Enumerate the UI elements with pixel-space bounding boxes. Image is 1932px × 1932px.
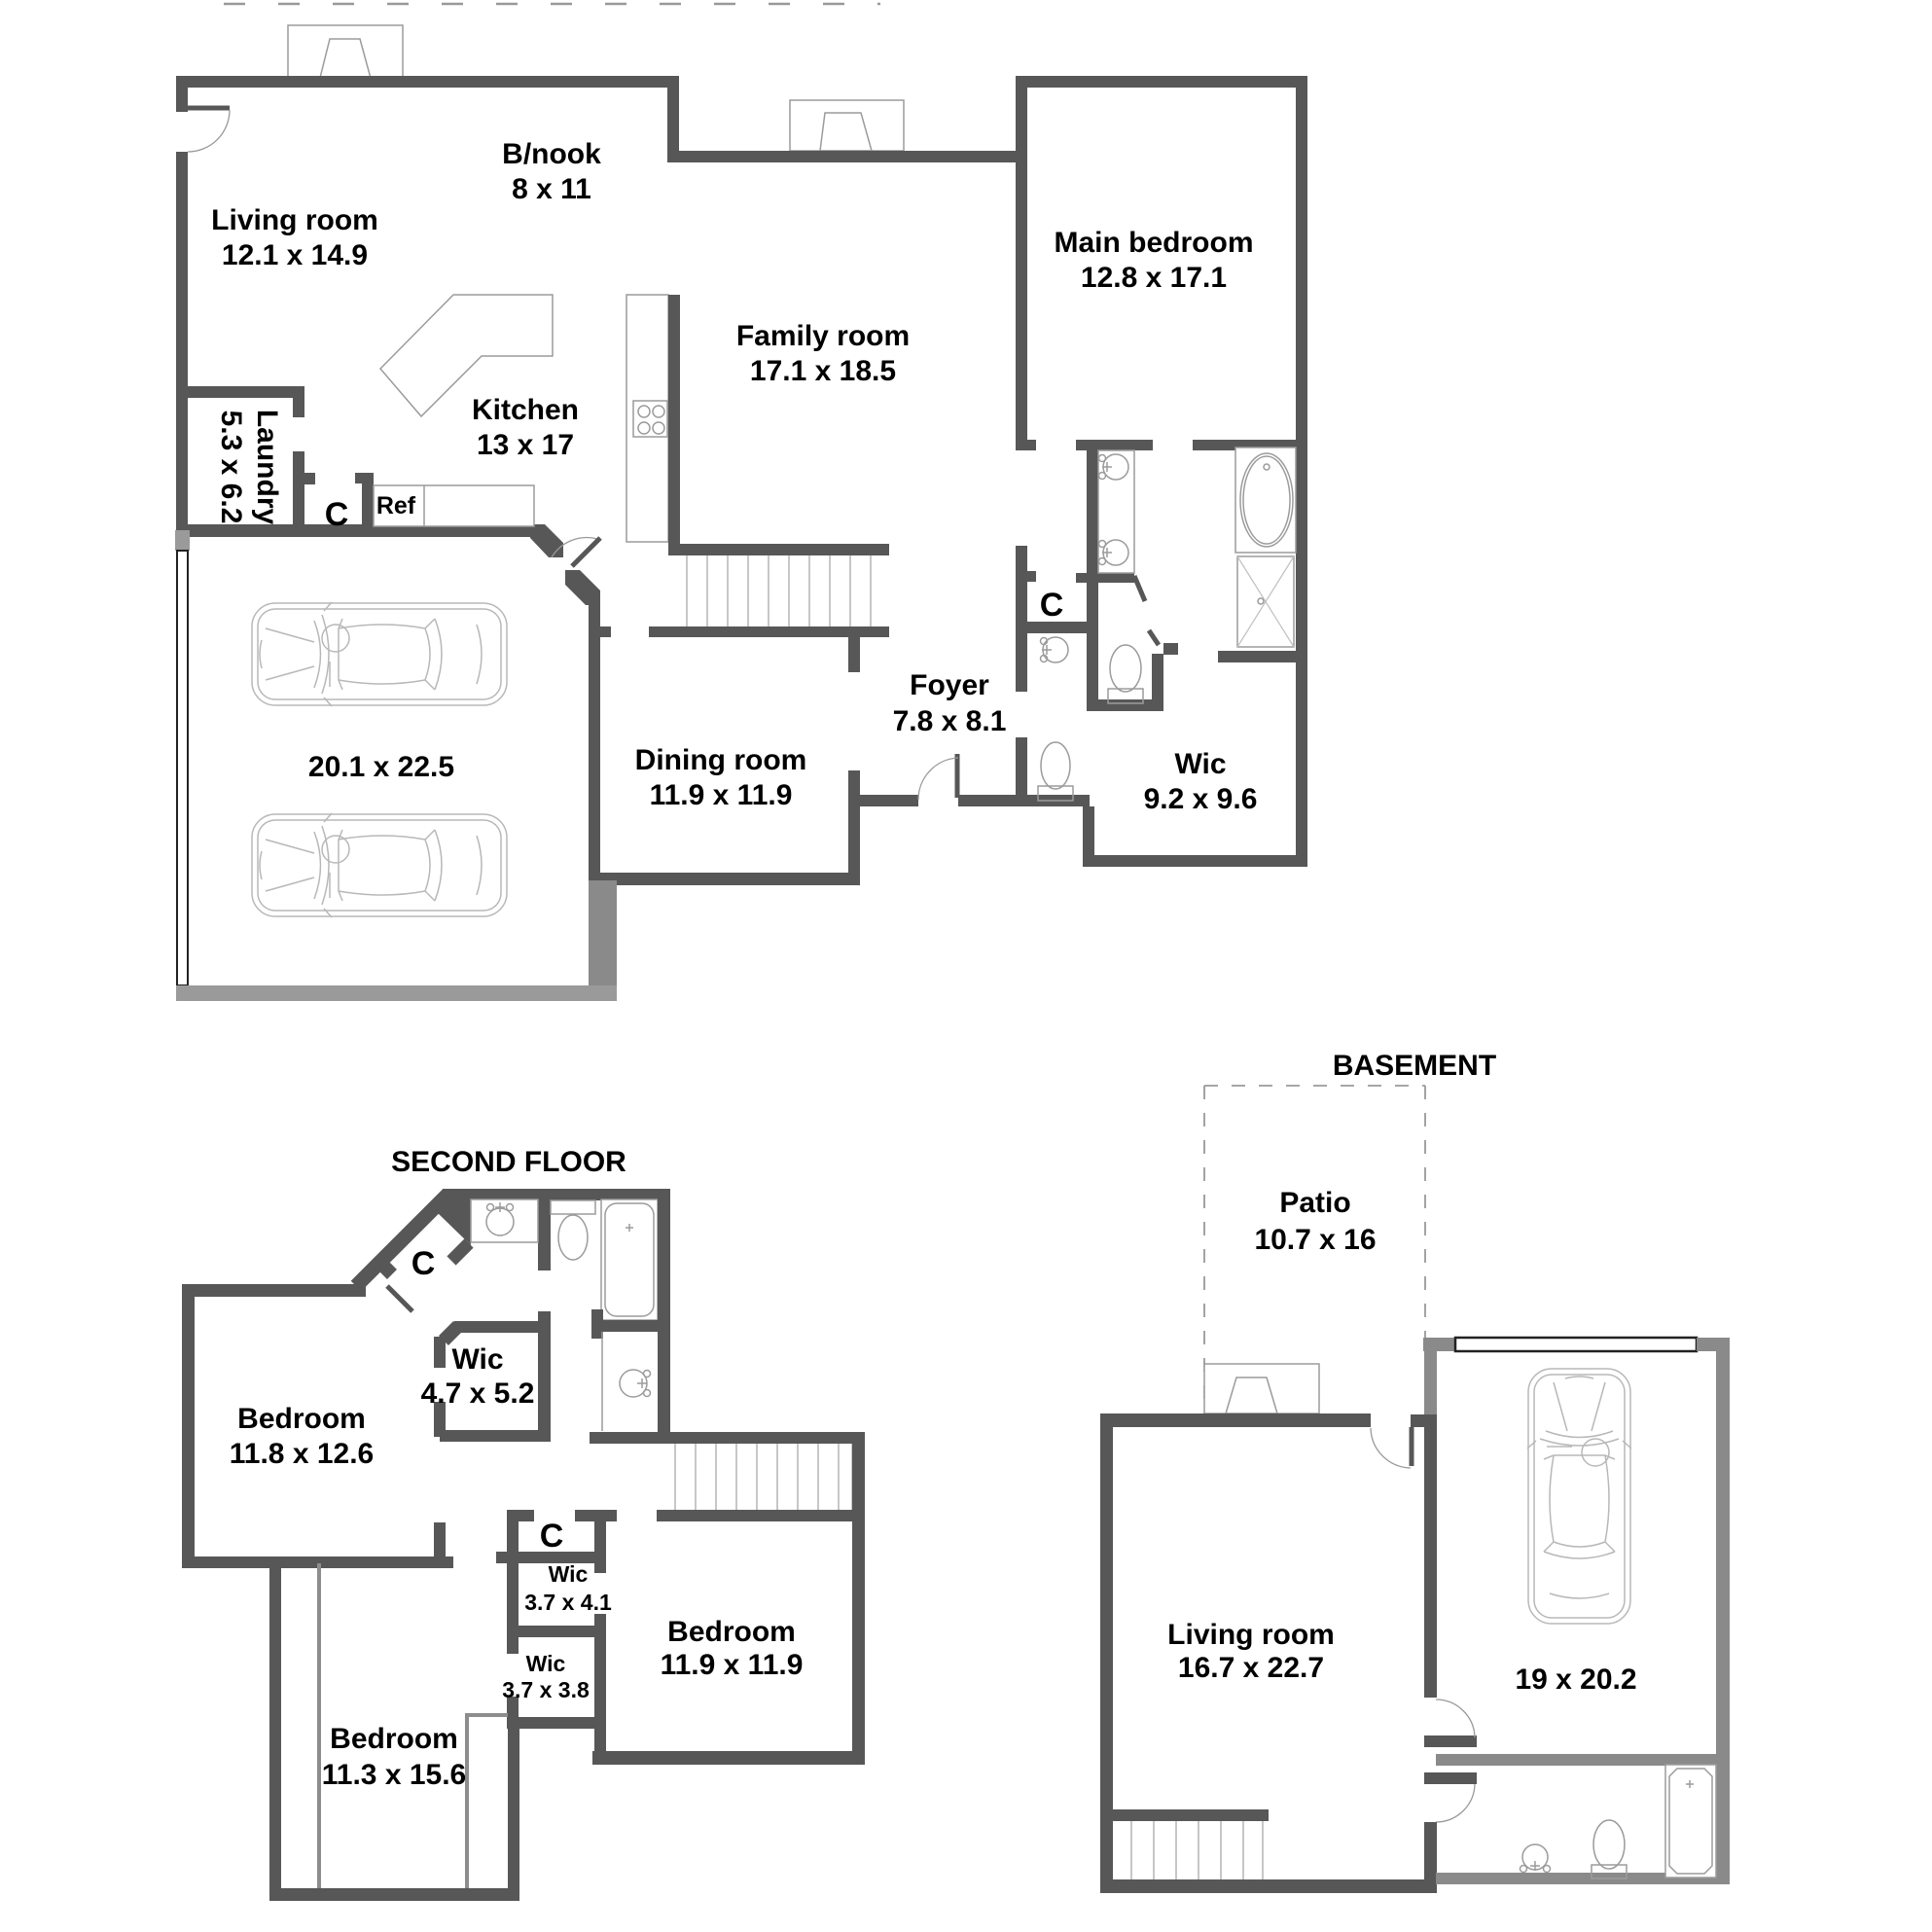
svg-text:Kitchen: Kitchen xyxy=(472,394,579,426)
svg-text:11.9 x 11.9: 11.9 x 11.9 xyxy=(650,779,793,811)
svg-text:4.7 x 5.2: 4.7 x 5.2 xyxy=(421,1377,535,1410)
svg-text:Wic: Wic xyxy=(526,1651,566,1676)
svg-text:16.7 x 22.7: 16.7 x 22.7 xyxy=(1178,1652,1324,1684)
svg-text:Ref: Ref xyxy=(376,492,416,519)
svg-text:BASEMENT: BASEMENT xyxy=(1333,1050,1496,1082)
svg-text:Wic: Wic xyxy=(451,1343,503,1376)
svg-text:Patio: Patio xyxy=(1279,1187,1350,1219)
svg-text:B/nook: B/nook xyxy=(502,138,601,170)
svg-text:Bedroom: Bedroom xyxy=(330,1723,458,1755)
svg-text:Main bedroom: Main bedroom xyxy=(1054,227,1253,259)
svg-text:C: C xyxy=(411,1245,436,1282)
svg-text:Living room: Living room xyxy=(1167,1619,1335,1651)
svg-text:Laundry: Laundry xyxy=(251,410,283,525)
svg-text:12.1 x 14.9: 12.1 x 14.9 xyxy=(222,239,368,271)
svg-text:11.3 x 15.6: 11.3 x 15.6 xyxy=(322,1759,466,1791)
svg-text:Family room: Family room xyxy=(736,320,910,352)
svg-text:C: C xyxy=(540,1518,564,1555)
svg-text:8 x 11: 8 x 11 xyxy=(512,173,591,205)
svg-text:SECOND FLOOR: SECOND FLOOR xyxy=(391,1146,626,1178)
svg-text:C: C xyxy=(1040,587,1064,624)
svg-text:Wic: Wic xyxy=(549,1561,589,1587)
svg-text:Wic: Wic xyxy=(1174,748,1226,780)
svg-text:11.8 x 12.6: 11.8 x 12.6 xyxy=(230,1438,374,1470)
svg-text:3.7 x 3.8: 3.7 x 3.8 xyxy=(502,1677,590,1702)
svg-text:7.8 x 8.1: 7.8 x 8.1 xyxy=(893,705,1007,737)
svg-text:13 x 17: 13 x 17 xyxy=(477,429,574,461)
svg-text:C: C xyxy=(325,496,349,533)
svg-text:20.1 x 22.5: 20.1 x 22.5 xyxy=(308,751,454,783)
svg-text:12.8 x 17.1: 12.8 x 17.1 xyxy=(1081,262,1227,294)
svg-text:17.1 x 18.5: 17.1 x 18.5 xyxy=(750,355,896,387)
svg-text:19 x 20.2: 19 x 20.2 xyxy=(1515,1664,1636,1696)
svg-text:9.2 x 9.6: 9.2 x 9.6 xyxy=(1144,783,1258,815)
svg-text:10.7 x 16: 10.7 x 16 xyxy=(1254,1224,1376,1256)
svg-text:3.7 x 4.1: 3.7 x 4.1 xyxy=(524,1590,612,1615)
svg-text:11.9 x 11.9: 11.9 x 11.9 xyxy=(661,1649,804,1681)
svg-text:Bedroom: Bedroom xyxy=(237,1403,366,1435)
svg-text:Living room: Living room xyxy=(211,204,378,236)
svg-text:Dining room: Dining room xyxy=(635,744,807,776)
svg-text:Foyer: Foyer xyxy=(910,669,989,701)
svg-text:5.3 x 6.2: 5.3 x 6.2 xyxy=(215,411,247,524)
svg-text:Bedroom: Bedroom xyxy=(667,1616,796,1648)
